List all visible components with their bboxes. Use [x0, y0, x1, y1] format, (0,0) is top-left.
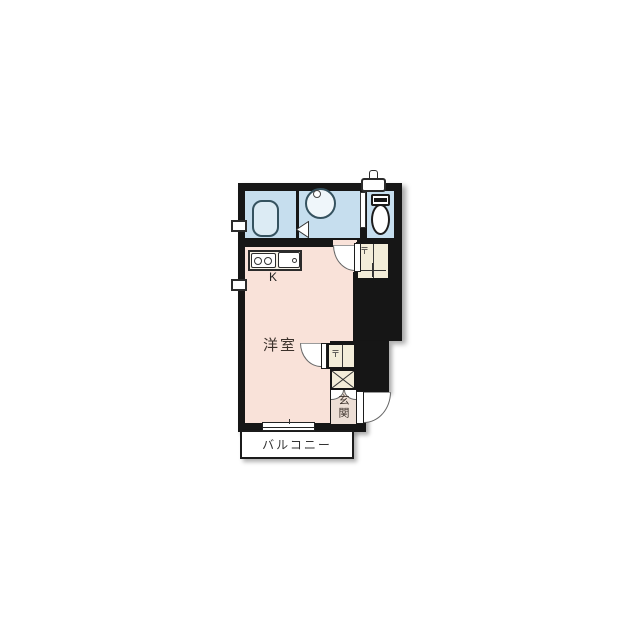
toilet-tank-band	[374, 198, 387, 202]
sink-faucet-icon	[292, 258, 297, 263]
window-center-tick	[289, 419, 290, 424]
bathtub-icon	[252, 200, 279, 237]
closet-door-leaf	[321, 343, 327, 369]
closet-top-right: 〒	[356, 242, 390, 280]
entrance-label: 玄関	[335, 394, 351, 424]
room-door-leaf	[354, 243, 361, 272]
bathroom-window-icon	[231, 220, 247, 232]
floor-plan: 〒 〒 バルコニー K 洋室 玄関	[0, 0, 640, 640]
closet-cross-line-v	[372, 263, 373, 277]
kitchen-label: K	[269, 270, 277, 284]
balcony-sliding-window-icon	[262, 422, 315, 431]
closet-divider-line	[373, 244, 374, 278]
cross-brace-icon	[332, 371, 354, 388]
toilet-door	[360, 192, 366, 228]
closet-mid-right: 〒	[327, 343, 356, 369]
stove-burner-icon	[254, 257, 262, 265]
shoe-cabinet	[330, 369, 356, 390]
balcony-area: バルコニー	[240, 430, 354, 459]
stove-burner-icon	[264, 257, 272, 265]
closet-cross-line-h	[360, 270, 386, 271]
entrance-door-leaf	[356, 391, 364, 424]
kitchen-window-icon	[231, 279, 247, 291]
window-track-line	[263, 427, 314, 428]
entrance-door-arc-icon	[364, 392, 391, 423]
closet-shelf-icon: 〒	[331, 350, 340, 359]
bath-folding-door-icon	[296, 221, 309, 238]
closet-divider-line	[342, 345, 343, 367]
closet-shelf-icon: 〒	[360, 247, 369, 256]
western-room-label: 洋室	[263, 334, 297, 355]
toilet-bowl-icon	[371, 204, 390, 235]
balcony-label: バルコニー	[262, 436, 332, 453]
water-heater-icon	[361, 178, 386, 192]
washbasin-faucet-icon	[313, 190, 321, 198]
